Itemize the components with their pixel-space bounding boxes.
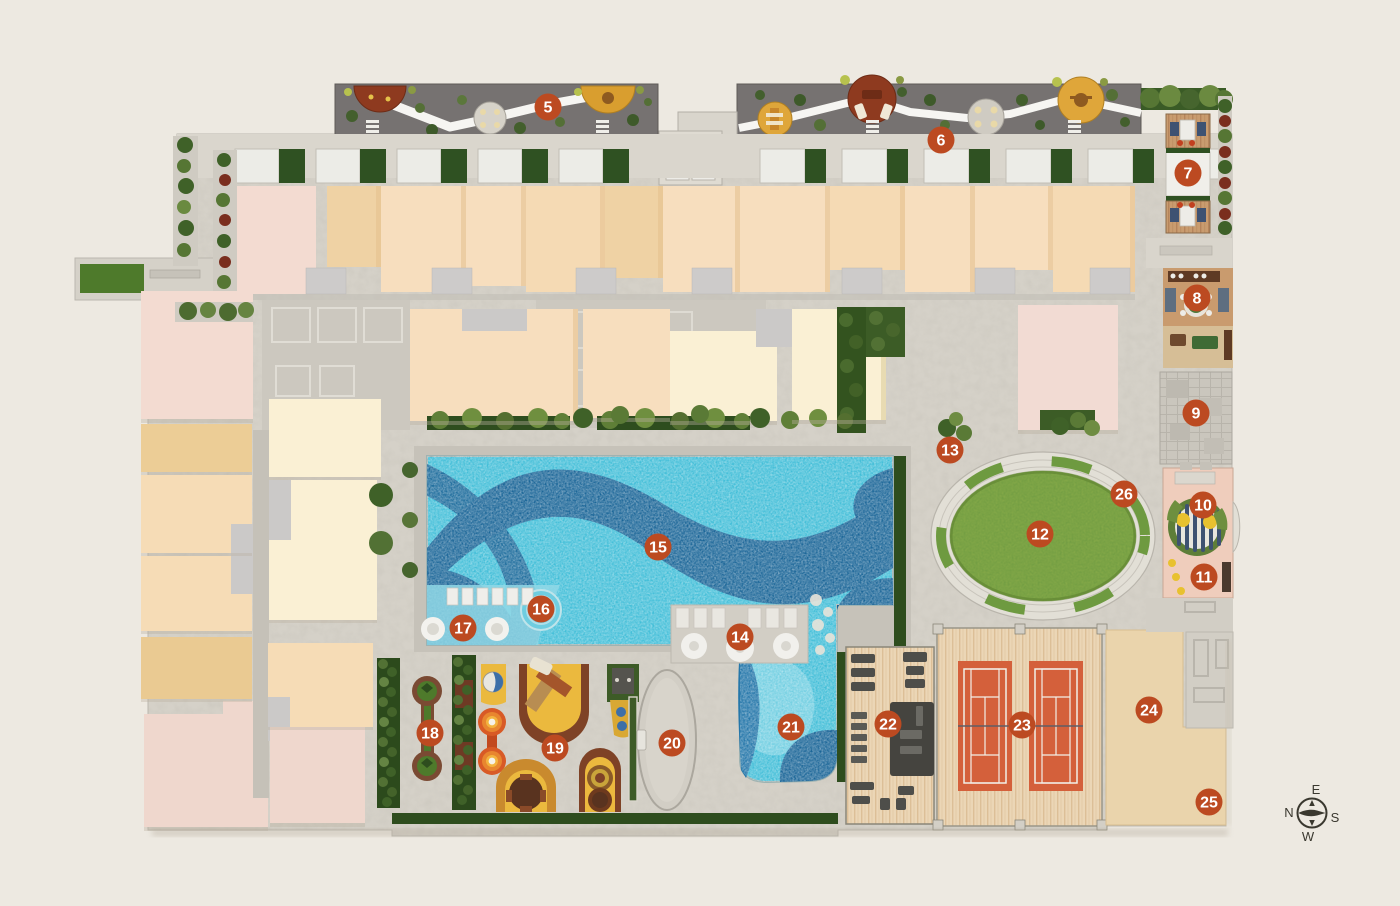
svg-text:10: 10	[1194, 498, 1212, 515]
svg-text:S: S	[1331, 810, 1340, 825]
svg-text:6: 6	[937, 133, 946, 150]
svg-text:24: 24	[1140, 703, 1158, 720]
svg-text:19: 19	[546, 741, 564, 758]
svg-text:7: 7	[1184, 166, 1193, 183]
svg-text:23: 23	[1013, 718, 1031, 735]
svg-text:26: 26	[1115, 487, 1133, 504]
svg-text:11: 11	[1196, 570, 1213, 587]
svg-text:25: 25	[1200, 795, 1218, 812]
svg-text:15: 15	[649, 540, 667, 557]
svg-text:N: N	[1284, 805, 1293, 820]
svg-text:14: 14	[731, 630, 749, 647]
svg-text:E: E	[1312, 782, 1321, 797]
svg-text:12: 12	[1031, 527, 1049, 544]
svg-text:16: 16	[532, 602, 550, 619]
svg-text:17: 17	[454, 621, 472, 638]
svg-text:13: 13	[941, 443, 959, 460]
svg-text:18: 18	[421, 726, 439, 743]
svg-text:22: 22	[879, 717, 897, 734]
svg-text:5: 5	[544, 100, 553, 117]
svg-text:21: 21	[782, 720, 800, 737]
svg-text:W: W	[1302, 829, 1315, 844]
svg-text:9: 9	[1192, 406, 1201, 423]
svg-text:8: 8	[1193, 291, 1202, 308]
svg-text:20: 20	[663, 736, 681, 753]
